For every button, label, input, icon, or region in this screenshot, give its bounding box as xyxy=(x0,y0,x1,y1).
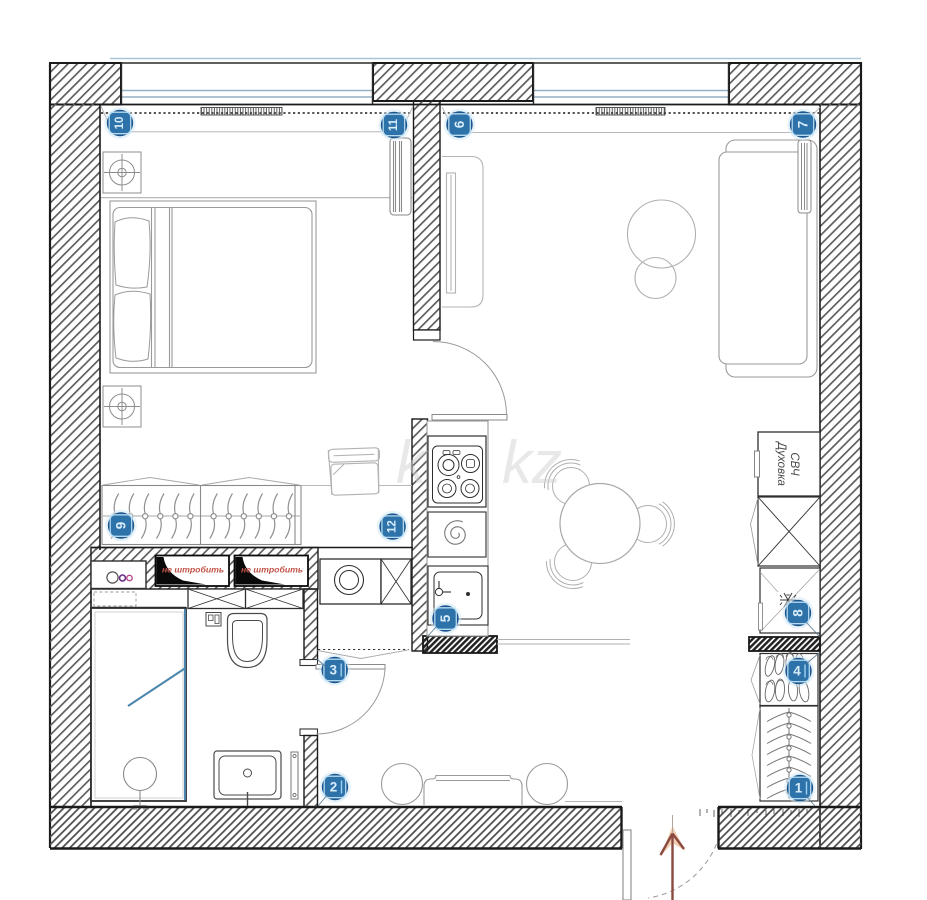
svg-text:8: 8 xyxy=(791,609,806,617)
svg-text:12: 12 xyxy=(387,520,399,533)
svg-text:10: 10 xyxy=(114,117,126,130)
svg-text:k: k xyxy=(396,429,429,496)
svg-text:не штробить: не штробить xyxy=(162,565,224,575)
svg-text:9: 9 xyxy=(114,522,129,530)
svg-text:1: 1 xyxy=(795,781,803,796)
svg-text:11: 11 xyxy=(388,118,400,131)
svg-text:не штробить: не штробить xyxy=(241,565,303,575)
svg-text:5: 5 xyxy=(438,614,453,622)
svg-text:4: 4 xyxy=(793,664,801,679)
svg-text:6: 6 xyxy=(452,120,467,128)
svg-text:2: 2 xyxy=(330,780,338,795)
svg-text:3: 3 xyxy=(329,663,337,678)
svg-text:kz: kz xyxy=(502,429,562,496)
svg-text:7: 7 xyxy=(796,121,811,129)
